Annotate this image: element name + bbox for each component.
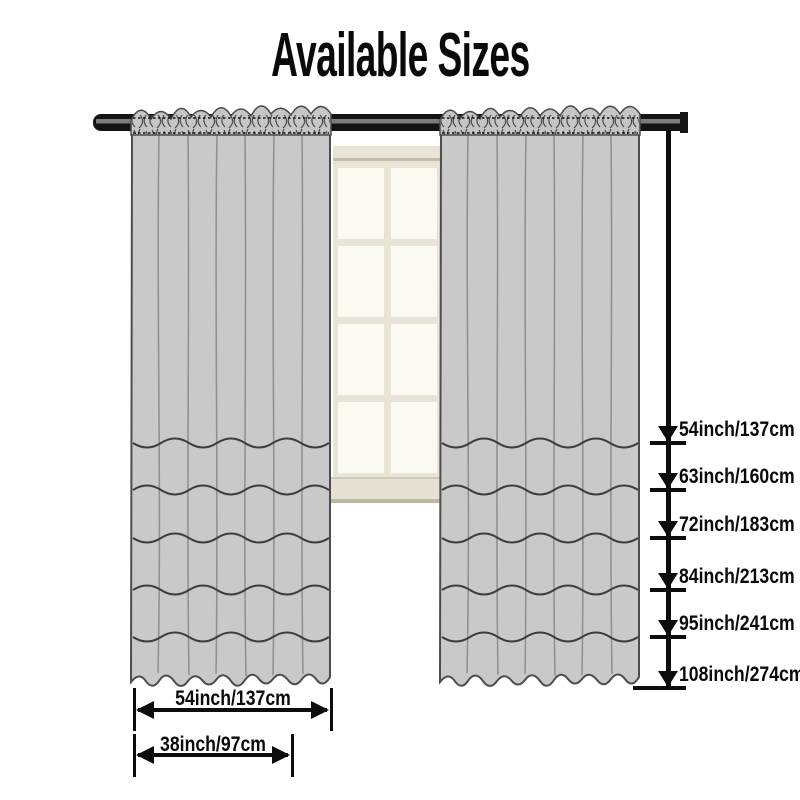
height-measure-line bbox=[666, 131, 671, 688]
down-arrow-icon bbox=[658, 473, 678, 489]
width-end-bar-right bbox=[330, 688, 333, 731]
down-arrow-icon bbox=[658, 521, 678, 537]
right-arrow-icon bbox=[311, 701, 329, 719]
left-arrow-icon bbox=[136, 701, 154, 719]
down-arrow-icon bbox=[658, 573, 678, 589]
measurement-annotations: 54inch/137cm63inch/160cm72inch/183cm84in… bbox=[0, 0, 800, 800]
height-size-label: 72inch/183cm bbox=[679, 514, 795, 536]
height-size-label: 54inch/137cm bbox=[679, 419, 795, 441]
height-size-label: 84inch/213cm bbox=[679, 566, 795, 588]
down-arrow-icon bbox=[658, 426, 678, 442]
left-arrow-icon bbox=[136, 746, 154, 764]
down-arrow-icon bbox=[658, 620, 678, 636]
width-end-bar-right bbox=[291, 734, 294, 777]
width-size-label: 38inch/97cm bbox=[160, 734, 266, 756]
height-size-label: 63inch/160cm bbox=[679, 466, 795, 488]
width-size-label: 54inch/137cm bbox=[175, 688, 291, 710]
diagram-stage: Available Sizes bbox=[0, 0, 800, 800]
right-arrow-icon bbox=[272, 746, 290, 764]
height-size-label: 108inch/274cm bbox=[679, 664, 800, 686]
height-size-label: 95inch/241cm bbox=[679, 613, 795, 635]
down-arrow-icon bbox=[658, 671, 678, 687]
